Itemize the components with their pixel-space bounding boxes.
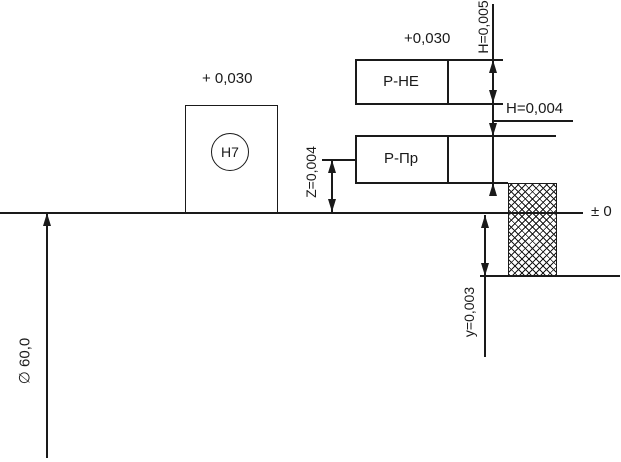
diameter-label: ∅ 60,0 [18,338,33,384]
diameter-arrow-icon [43,213,51,226]
hole-upper-deviation-label: + 0,030 [202,71,252,86]
z-offset-label: Z=0,004 [304,146,318,198]
wear-zone-hatch [508,183,557,276]
wear-dimension-line [484,215,486,357]
go-height-leader-line [493,120,573,122]
nogo-height-bottom-arrow-icon [489,90,497,103]
diameter-dimension-line [46,214,48,458]
zero-line-label: ± 0 [591,204,612,219]
z-offset-leader-line [322,159,355,161]
wear-top-arrow-icon [481,215,489,228]
hole-tolerance-code-circle: H7 [211,133,249,171]
zero-line [0,212,583,214]
hole-tolerance-code: H7 [221,144,239,160]
nogo-height-top-arrow-icon [489,60,497,73]
go-height-label: H=0,004 [506,101,563,116]
wear-limit-line [480,275,620,277]
wear-bottom-arrow-icon [481,263,489,276]
wear-allowance-label: y=0,003 [462,287,476,337]
nogo-upper-deviation-label: +0,030 [404,31,450,46]
z-offset-bottom-arrow-icon [328,199,336,212]
z-offset-top-arrow-icon [328,160,336,173]
go-zone-divider-line [447,135,449,183]
gauge-tolerance-diagram: ± 0 ∅ 60,0 H7 + 0,030 Р-НЕ +0,030 H=0,00… [0,0,621,462]
go-zone-bottom-line [355,182,508,184]
go-gauge-label: Р-Пр [355,135,447,182]
nogo-zone-divider-line [447,59,449,105]
nogo-height-label: H=0,005 [476,0,490,53]
nogo-gauge-label: Р-НЕ [355,59,447,104]
go-height-bottom-arrow-icon [489,183,497,196]
